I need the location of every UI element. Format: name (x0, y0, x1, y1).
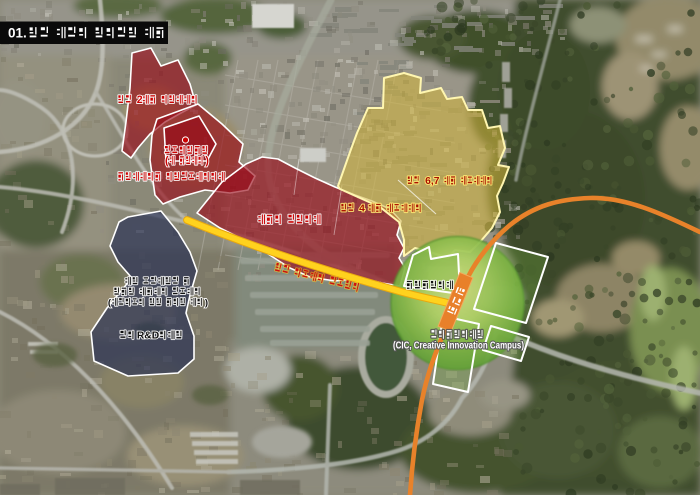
svg-text:(: ( (165, 155, 169, 167)
svg-text:): ) (205, 297, 208, 308)
svg-text:01.: 01. (8, 26, 27, 41)
svg-text:(CIC, Creative Innovation Camp: (CIC, Creative Innovation Campus) (393, 340, 524, 352)
svg-text:4: 4 (359, 204, 365, 215)
svg-text:2: 2 (137, 94, 143, 106)
svg-text:6,7: 6,7 (425, 176, 440, 187)
svg-text:R&D: R&D (137, 331, 159, 342)
svg-text:): ) (205, 155, 209, 167)
